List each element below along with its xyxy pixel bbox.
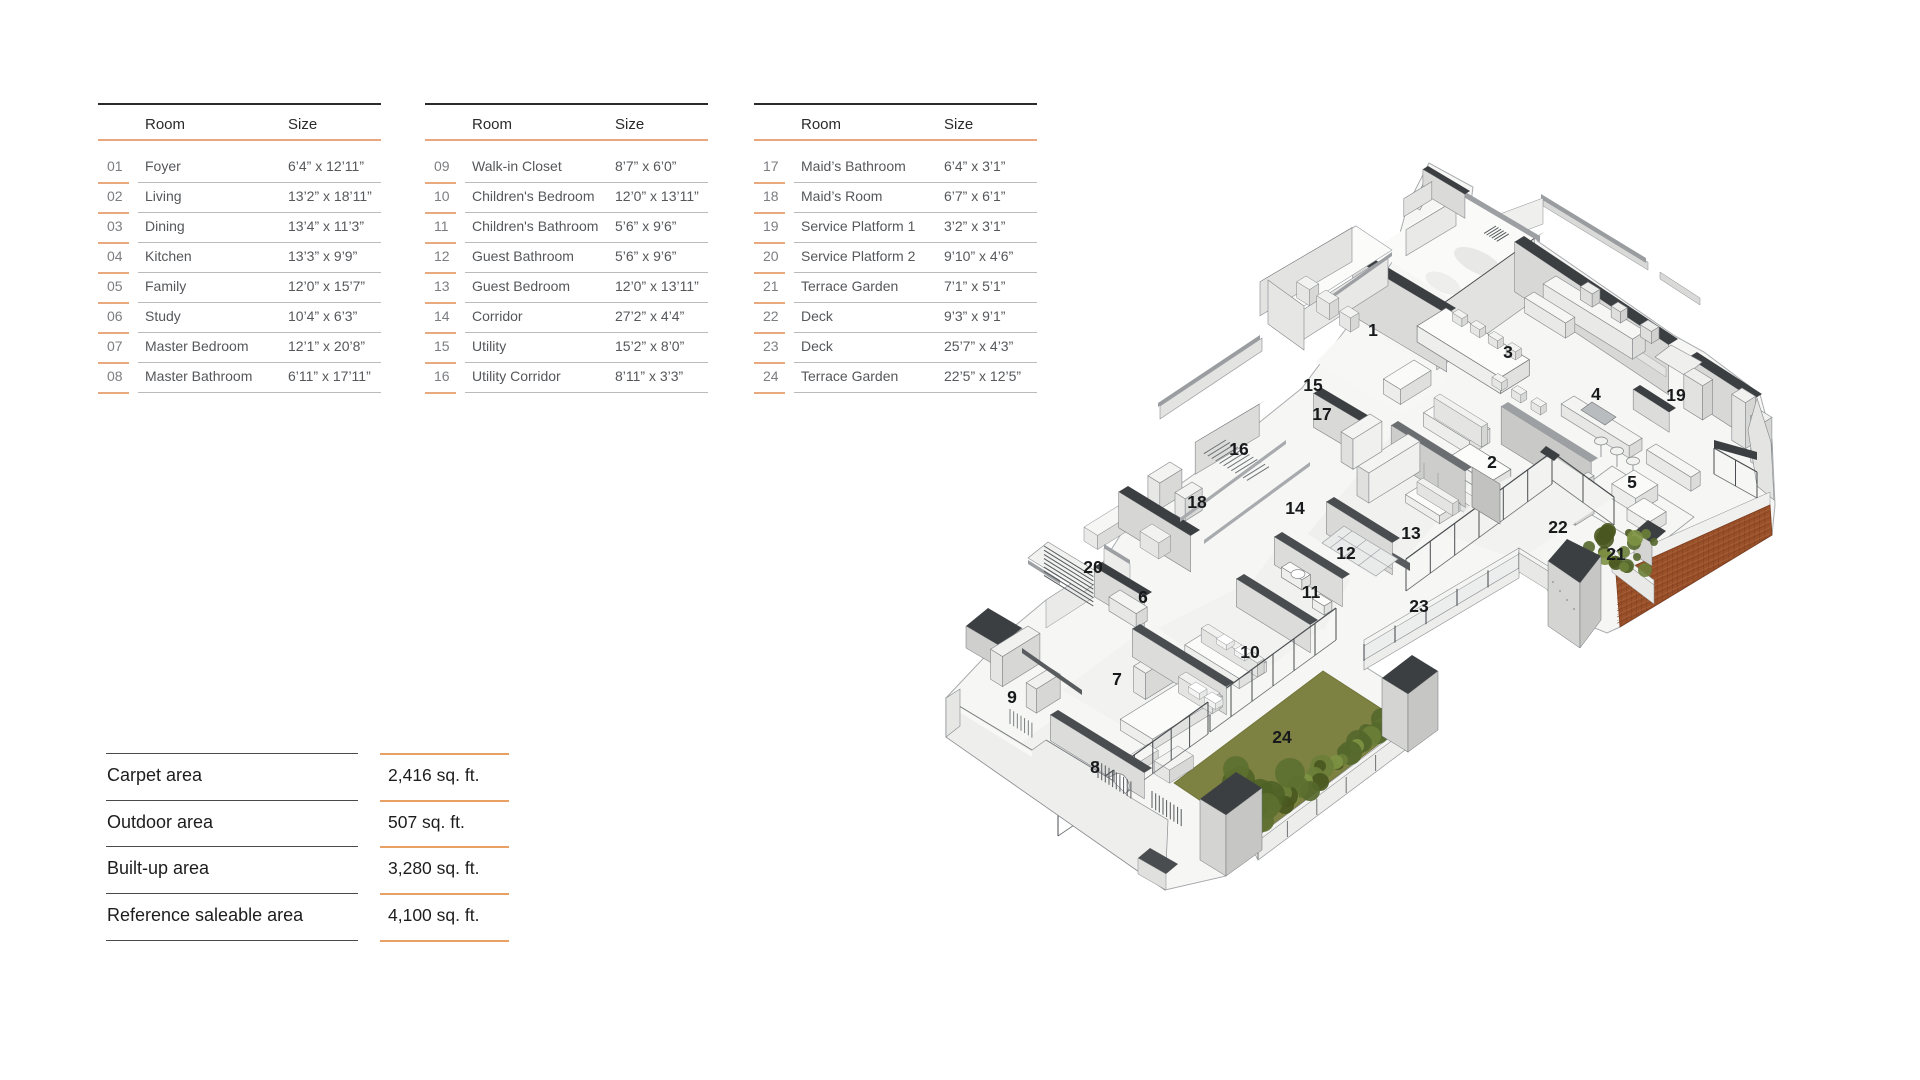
svg-text:17: 17	[1312, 404, 1331, 424]
svg-text:6: 6	[1138, 587, 1148, 607]
svg-text:8: 8	[1090, 757, 1100, 777]
svg-text:22: 22	[1548, 517, 1568, 537]
svg-text:4: 4	[1591, 384, 1601, 404]
svg-text:20: 20	[1083, 557, 1103, 577]
svg-text:2: 2	[1487, 452, 1497, 472]
svg-text:24: 24	[1272, 727, 1292, 747]
svg-text:10: 10	[1240, 642, 1260, 662]
svg-text:19: 19	[1666, 385, 1686, 405]
svg-text:18: 18	[1187, 492, 1207, 512]
svg-text:14: 14	[1285, 498, 1305, 518]
svg-text:1: 1	[1368, 320, 1378, 340]
svg-text:9: 9	[1007, 687, 1017, 707]
svg-text:15: 15	[1303, 375, 1323, 395]
svg-text:5: 5	[1627, 472, 1637, 492]
svg-text:11: 11	[1302, 582, 1321, 602]
svg-text:7: 7	[1112, 669, 1122, 689]
svg-text:12: 12	[1336, 543, 1356, 563]
svg-text:13: 13	[1401, 523, 1421, 543]
svg-text:16: 16	[1229, 439, 1249, 459]
svg-text:3: 3	[1503, 342, 1513, 362]
svg-text:23: 23	[1409, 596, 1429, 616]
svg-text:21: 21	[1606, 544, 1626, 564]
